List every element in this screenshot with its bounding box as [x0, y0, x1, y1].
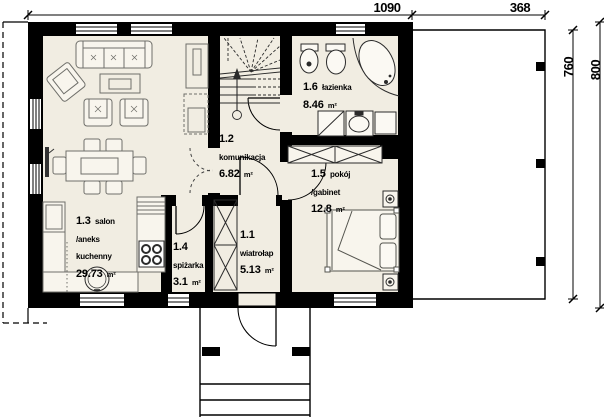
room-name: łazienka — [322, 83, 352, 92]
room-number: 1.3 — [76, 215, 91, 227]
terrace-pillars — [536, 62, 545, 266]
room-area-unit: m² — [244, 170, 253, 179]
room-area: 6.82 — [219, 168, 240, 180]
window-left-2 — [30, 164, 41, 194]
room-number: 1.1 — [240, 229, 255, 241]
dimension-label-1090: 1090 — [362, 0, 412, 15]
entry-porch — [200, 308, 310, 417]
room-label-pokoj: 1.5 pokój /gabinet 12.8 m² — [311, 164, 363, 217]
room-area-unit: m² — [265, 266, 274, 275]
room-area: 12.8 — [311, 203, 332, 215]
nightstand-2 — [383, 274, 398, 290]
room-name: spiżarka — [173, 261, 203, 270]
vanity-sink — [346, 111, 373, 136]
window-bedroom — [334, 294, 376, 306]
room-name: komunikacja — [219, 153, 265, 162]
sofa — [76, 41, 152, 68]
window-top-1 — [76, 24, 117, 34]
floor-plan-drawing — [0, 0, 604, 417]
wardrobe-bedroom — [288, 146, 382, 163]
room-area-unit: m² — [192, 278, 201, 287]
washing-machine — [318, 111, 344, 136]
dimension-label-800: 800 — [588, 47, 603, 93]
room-area: 3.1 — [173, 276, 188, 288]
room-label-lazienka: 1.6 łazienka 8.46 m² — [303, 77, 377, 112]
terrace — [413, 30, 545, 299]
room-area-unit: m² — [328, 101, 337, 110]
dimension-label-760: 760 — [561, 44, 576, 90]
porch-pillars — [202, 347, 310, 356]
dimension-label-368: 368 — [498, 0, 542, 15]
room-label-spizarka: 1.4 spiżarka 3.1 m² — [173, 237, 209, 290]
entrance-door — [238, 293, 276, 346]
nightstand-1 — [383, 191, 398, 207]
room-label-salon: 1.3 salon /aneks kuchenny 29.73 m² — [76, 211, 136, 281]
room-number: 1.5 — [311, 168, 326, 180]
window-top-2 — [131, 24, 172, 34]
washbasin — [300, 44, 318, 73]
bed — [325, 208, 399, 272]
room-area: 5.13 — [240, 264, 261, 276]
stove — [139, 241, 164, 267]
room-label-wiatrolap: 1.1 wiatrołap 5.13 m² — [240, 225, 288, 278]
room-number: 1.6 — [303, 81, 318, 93]
room-area: 29.73 — [76, 268, 103, 280]
room-name: wiatrołap — [240, 249, 273, 258]
room-number: 1.4 — [173, 241, 188, 253]
room-number: 1.2 — [219, 133, 234, 145]
window-left-1 — [30, 99, 41, 129]
room-area-unit: m² — [336, 205, 345, 214]
room-area: 8.46 — [303, 99, 324, 111]
floor-plan-page: 1.3 salon /aneks kuchenny 29.73 m² 1.4 s… — [0, 0, 604, 417]
window-bathroom — [336, 24, 365, 34]
bath-cabinet — [375, 112, 396, 134]
armchair-1 — [84, 99, 112, 126]
room-area-unit: m² — [107, 270, 116, 279]
window-spizarka — [168, 294, 189, 306]
window-kitchen — [80, 294, 124, 306]
toilet — [326, 44, 346, 74]
room-label-komunikacja: 1.2 komunikacja 6.82 m² — [219, 129, 281, 182]
armchair-2 — [120, 99, 148, 126]
